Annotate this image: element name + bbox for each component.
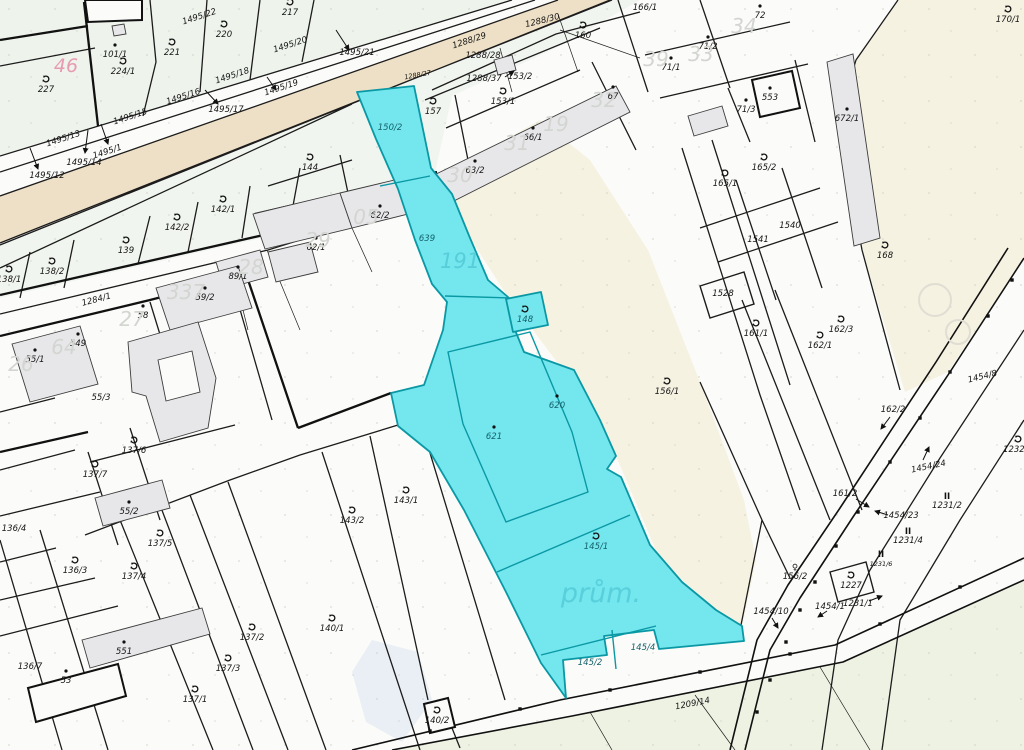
parcel-label: 138/1 — [0, 275, 21, 285]
parcel-label: 71/3 — [736, 105, 755, 115]
parcel-label: 1231/4 — [893, 536, 923, 546]
block-number: 191 — [440, 249, 480, 273]
parcel-label: 156/1 — [655, 387, 680, 397]
block-number: 39 — [643, 47, 668, 71]
parcel-label: 227 — [38, 85, 55, 95]
block-number: 46 — [54, 55, 78, 77]
parcel-label: 156/2 — [783, 572, 808, 582]
road-parcel-label: 1288/28 — [465, 51, 501, 61]
parcel-label: 137/4 — [122, 572, 147, 582]
cadastral-map[interactable]: 101/1227224/1221220217144157142/1142/213… — [0, 0, 1024, 750]
zone-label: prům. — [560, 578, 641, 609]
block-number: 26 — [8, 352, 33, 376]
block-number: 28 — [238, 255, 263, 279]
parcel-label: 137/3 — [216, 664, 241, 674]
building-dot-icon — [744, 98, 747, 101]
road-vertex-marker — [986, 314, 989, 317]
block-number: 34 — [731, 14, 756, 38]
parcel-label: 162/2 — [881, 405, 906, 415]
parcel-label: 1231/1 — [843, 599, 873, 609]
parcel-label: 161/1 — [744, 329, 769, 339]
parcel-label: 1541 — [747, 235, 769, 245]
parcel-label: 160 — [575, 31, 591, 41]
road-parcel-label: 1495/17 — [208, 105, 244, 115]
parcel-label: 144 — [302, 163, 318, 173]
parcel-label: 162/3 — [829, 325, 854, 335]
parcel-label: 142/2 — [165, 223, 190, 233]
block-number: 19 — [543, 112, 568, 136]
parcel-label: 138/2 — [40, 267, 65, 277]
highlighted-parcel-label: 148 — [517, 315, 534, 325]
highlighted-parcel-label: 145/2 — [578, 658, 603, 668]
block-number: 29 — [305, 228, 330, 252]
road-vertex-marker — [428, 729, 431, 732]
parcel-label: 136/7 — [18, 662, 43, 672]
block-number: 337 — [167, 280, 205, 304]
parcel-label: 157 — [425, 107, 442, 117]
block-number: 05 — [353, 205, 378, 229]
parcel-label: 162/2 — [881, 405, 906, 415]
parcel-label: 1231/1 — [843, 599, 873, 609]
road-vertex-marker — [768, 678, 771, 681]
building-dot-icon — [845, 107, 848, 110]
block-number: 27 — [119, 307, 145, 331]
parcel-label: 1528 — [712, 289, 734, 299]
block-number: 39 — [643, 47, 668, 71]
block-number: 29 — [305, 228, 330, 252]
block-number: 31 — [504, 131, 529, 155]
parcel-label: 55/3 — [91, 393, 110, 403]
block-number: 27 — [119, 307, 145, 331]
parcel-label: 165/1 — [713, 179, 738, 189]
block-number: 19 — [543, 112, 568, 136]
road-vertex-marker — [958, 585, 961, 588]
road-parcel-label: 1454/10 — [753, 607, 788, 617]
parcel-label: 217 — [282, 8, 299, 18]
parcel-label: 1541 — [747, 235, 769, 245]
highlighted-parcel-label: 145/1 — [584, 542, 609, 552]
road-parcel-label: 1495/21 — [339, 48, 374, 58]
parcel-label: 137/7 — [83, 470, 108, 480]
building-dot-icon — [706, 35, 709, 38]
parcel-label: 137/5 — [148, 539, 173, 549]
building-dot-icon — [378, 204, 381, 207]
zone-label: prům. — [560, 578, 641, 609]
building-dot-icon — [555, 394, 558, 397]
parcel-label: 136/4 — [2, 524, 27, 534]
building-dot-icon — [768, 86, 771, 89]
building-dot-icon — [127, 500, 130, 503]
block-number: 30 — [447, 163, 472, 187]
road-parcel-label: 1454/1 — [815, 602, 845, 612]
block-number: 32 — [591, 88, 616, 112]
building-dot-icon — [64, 669, 67, 672]
building-dot-icon — [531, 126, 534, 129]
road-parcel-label: 1495/21 — [339, 48, 374, 58]
parcel-label: 153/2 — [508, 72, 533, 82]
block-number: 64 — [51, 335, 76, 359]
landuse-II-icon: II — [878, 550, 884, 560]
parcel-label: 1540 — [779, 221, 801, 231]
road-parcel-label: 1288/37 — [466, 74, 502, 84]
road-vertex-marker — [784, 640, 787, 643]
road-vertex-marker — [755, 710, 758, 713]
road-parcel-label: 1454/10 — [753, 607, 788, 617]
road-parcel-label: 1454/23 — [883, 511, 918, 521]
building-dot-icon — [76, 332, 79, 335]
parcel-label: 137/2 — [240, 633, 265, 643]
road-vertex-marker — [888, 460, 891, 463]
highlighted-parcel-148 — [506, 292, 548, 332]
highlighted-parcel-label: 620 — [549, 401, 565, 411]
road-parcel-label: 1495/17 — [208, 105, 244, 115]
parcel-label: 55/3 — [91, 393, 110, 403]
road-parcel-label: 1495/12 — [29, 171, 64, 181]
highlighted-parcel-label: 145/4 — [631, 643, 656, 653]
road-vertex-marker — [918, 416, 921, 419]
cadastral-map-viewport[interactable]: 101/1227224/1221220217144157142/1142/213… — [0, 0, 1024, 750]
parcel-label: 1227 — [840, 581, 862, 591]
highlighted-parcel-label: 150/2 — [378, 123, 403, 133]
parcel-label: 1540 — [779, 221, 801, 231]
building-dot-icon — [122, 640, 125, 643]
parcel-label: 153/1 — [491, 97, 516, 107]
parcel-label: 143/2 — [340, 516, 365, 526]
road-parcel-label: 1495/12 — [29, 171, 64, 181]
parcel-label: 137/6 — [122, 446, 147, 456]
parcel-label: 1231/6 — [870, 560, 893, 568]
road-vertex-marker — [1010, 278, 1013, 281]
building-dot-icon — [113, 43, 116, 46]
block-number: 33 — [688, 42, 713, 66]
building-dot-icon — [492, 425, 495, 428]
road-vertex-marker — [813, 580, 816, 583]
road-parcel-label: 1288/28 — [465, 51, 501, 61]
parcel-label: 55/2 — [119, 507, 138, 517]
block-number: 34 — [731, 14, 756, 38]
parcel-label: 161/2 — [833, 489, 858, 499]
parcel-label: 136/3 — [63, 566, 88, 576]
parcel-label: 140/2 — [425, 716, 450, 726]
block-number: 64 — [51, 335, 76, 359]
parcel-label: 1231/2 — [932, 501, 962, 511]
parcel-label: 136/4 — [2, 524, 27, 534]
road-vertex-marker — [878, 622, 881, 625]
block-number: 28 — [238, 255, 263, 279]
parcel-label: 168 — [877, 251, 894, 261]
road-parcel-label: 1288/37 — [466, 74, 502, 84]
parcel-label: 137/1 — [183, 695, 208, 705]
parcel-label: 170/1 — [996, 15, 1021, 25]
road-vertex-marker — [608, 688, 611, 691]
parcel-label: 53 — [61, 676, 72, 686]
parcel-label: 221 — [164, 48, 180, 58]
highlighted-parcel-label: 639 — [419, 234, 435, 244]
parcel-label: 553 — [762, 93, 778, 103]
road-parcel-label: 1495/14 — [66, 158, 101, 168]
parcel-label: 161/2 — [833, 489, 858, 499]
parcel-label: 1232/1 — [1003, 445, 1024, 455]
parcel-label: 551 — [116, 647, 132, 657]
road-parcel-label: 1454/23 — [883, 511, 918, 521]
parcel-label: 165/2 — [752, 163, 777, 173]
road-parcel-label: 1495/14 — [66, 158, 101, 168]
highlighted-parcel-label: 150/2 — [378, 123, 403, 133]
road-parcel-label: 1454/1 — [815, 602, 845, 612]
road-vertex-marker — [856, 510, 859, 513]
block-number: 26 — [8, 352, 33, 376]
building-dot-icon — [758, 4, 761, 7]
block-number: 33 — [688, 42, 713, 66]
parcel-label: 162/1 — [808, 341, 833, 351]
block-number: 337 — [167, 280, 205, 304]
road-vertex-marker — [948, 370, 951, 373]
parcel-label: 140/1 — [320, 624, 345, 634]
road-vertex-marker — [698, 670, 701, 673]
parcel-label: 220 — [216, 30, 232, 40]
block-number: 30 — [447, 163, 472, 187]
block-number: 46 — [54, 55, 78, 77]
highlighted-parcel-label: 621 — [486, 432, 502, 442]
parcel-label: 1528 — [712, 289, 734, 299]
parcel-label: 143/1 — [394, 496, 419, 506]
road-vertex-marker — [798, 608, 801, 611]
parcel-label: 166/1 — [633, 3, 658, 13]
building-dot-icon — [473, 159, 476, 162]
road-vertex-marker — [518, 707, 521, 710]
highlighted-parcel-label: 145/4 — [631, 643, 656, 653]
parcel-label: 672/1 — [835, 114, 860, 124]
parcel-label: 139 — [118, 246, 134, 256]
block-number: 191 — [440, 249, 480, 273]
road-vertex-marker — [788, 652, 791, 655]
parcel-label: 224/1 — [111, 67, 136, 77]
block-number: 32 — [591, 88, 616, 112]
parcel-label: 153/2 — [508, 72, 533, 82]
highlighted-parcel-label: 145/2 — [578, 658, 603, 668]
block-number: 05 — [353, 205, 378, 229]
block-number: 31 — [504, 131, 529, 155]
parcel-label: 136/7 — [18, 662, 43, 672]
parcel-label: 142/1 — [211, 205, 236, 215]
road-vertex-marker — [834, 544, 837, 547]
highlighted-parcel-label: 639 — [419, 234, 435, 244]
building-dot-icon — [669, 56, 672, 59]
building-dot-icon — [33, 348, 36, 351]
